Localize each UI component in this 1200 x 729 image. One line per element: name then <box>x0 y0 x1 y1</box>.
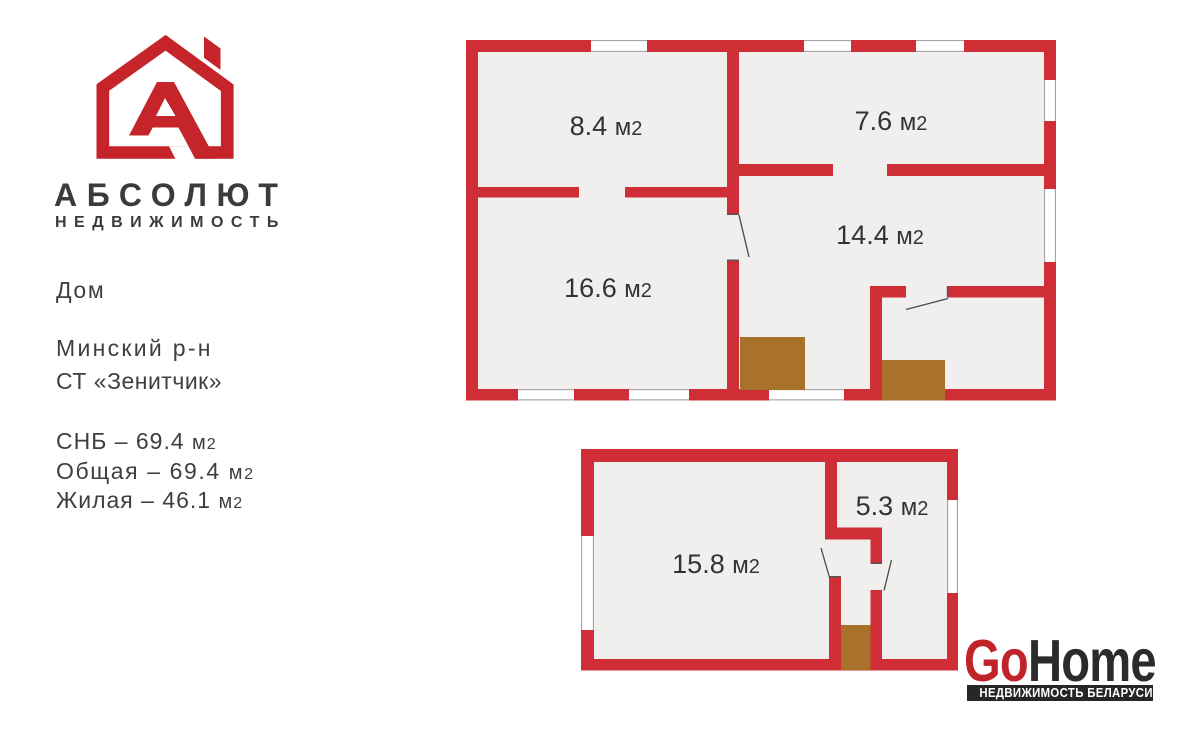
svg-text:16.6 м2: 16.6 м2 <box>564 273 652 303</box>
svg-text:15.8 м2: 15.8 м2 <box>672 549 760 579</box>
svg-text:14.4 м2: 14.4 м2 <box>836 220 924 250</box>
